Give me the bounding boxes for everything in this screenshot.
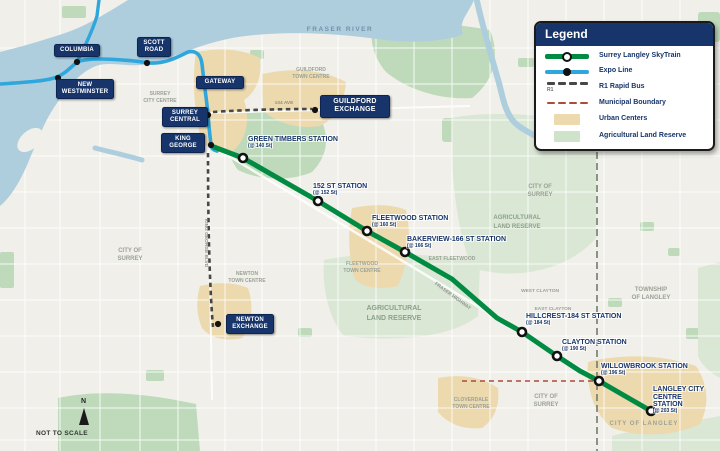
- station-sub: (@ 152 St): [313, 191, 367, 196]
- legend-item-r1: R1 R1 Rapid Bus: [543, 82, 706, 93]
- dot-fleetwood: [363, 227, 371, 235]
- legend-label: R1 Rapid Bus: [599, 83, 645, 92]
- urban-swatch: [543, 114, 591, 125]
- legend-item-urban: Urban Centers: [543, 114, 706, 125]
- north-arrow-icon: [79, 408, 89, 425]
- dot-green-timbers: [239, 154, 247, 162]
- label-guildford-town-centre: GUILDFORD: [296, 67, 326, 73]
- dot-king-george: [208, 142, 214, 148]
- scale-note: NOT TO SCALE: [36, 430, 88, 437]
- station-box-new-westminster: NEW WESTMINSTER: [56, 79, 114, 99]
- label-west-clayton: WEST CLAYTON: [521, 288, 559, 294]
- dot-bakerview: [401, 248, 409, 256]
- dot-columbia: [74, 59, 80, 65]
- label-alr-centre: AGRICULTURAL: [366, 305, 422, 312]
- dot-willowbrook: [595, 377, 603, 385]
- label-city-of-surrey-west: SURREY: [117, 256, 142, 262]
- label-surrey-city-centre: CITY CENTRE: [143, 98, 177, 104]
- skytrain-label-willowbrook: WILLOWBROOK STATION (@ 196 St): [601, 363, 688, 376]
- r1-tag: R1: [547, 87, 553, 93]
- station-sub: (@ 203 St): [653, 409, 711, 414]
- park-patch: [0, 252, 14, 288]
- label-fleetwood-town-centre: TOWN CENTRE: [343, 268, 381, 274]
- label-alr-east: LAND RESERVE: [494, 224, 541, 230]
- station-dot-icon: [563, 68, 571, 76]
- skytrain-label-clayton: CLAYTON STATION (@ 190 St): [562, 339, 627, 352]
- legend-item-skytrain: Surrey Langley SkyTrain: [543, 52, 706, 61]
- label-city-of-surrey-ne: SURREY: [527, 192, 552, 198]
- station-box-surrey-central: SURREY CENTRAL: [162, 107, 208, 127]
- dot-hillcrest: [518, 328, 526, 336]
- skytrain-line-swatch: [543, 52, 591, 61]
- legend-title: Legend: [536, 23, 713, 46]
- legend-label: Agricultural Land Reserve: [599, 132, 689, 141]
- label-fraser-river: FRASER RIVER: [307, 26, 373, 33]
- legend-item-alr: Agricultural Land Reserve: [543, 131, 706, 142]
- label-alr-centre: LAND RESERVE: [367, 315, 422, 322]
- label-newton-town-centre: NEWTON: [236, 271, 259, 277]
- station-name: LANGLEY CITY CENTRE STATION: [653, 386, 704, 408]
- label-city-of-langley: CITY OF LANGLEY: [610, 421, 679, 427]
- station-box-gateway: GATEWAY: [196, 76, 244, 89]
- station-sub: (@ 196 St): [601, 371, 688, 376]
- station-name: HILLCREST-184 ST STATION: [526, 313, 621, 320]
- station-name: GREEN TIMBERS STATION: [248, 136, 338, 143]
- alr-swatch: [543, 131, 591, 142]
- skytrain-label-langley-city-centre: LANGLEY CITY CENTRE STATION (@ 203 St): [653, 386, 711, 414]
- label-fleetwood-town-centre: FLEETWOOD: [346, 261, 378, 267]
- park-patch: [608, 298, 622, 307]
- legend-label: Expo Line: [599, 67, 632, 76]
- station-name: BAKERVIEW-166 ST STATION: [407, 236, 506, 243]
- station-name: WILLOWBROOK STATION: [601, 363, 688, 370]
- label-king-george-blvd: KING GEORGE BLVD: [203, 219, 209, 268]
- station-name: 152 ST STATION: [313, 183, 367, 190]
- station-sub: (@ 184 St): [526, 321, 621, 326]
- legend-item-expo: Expo Line: [543, 67, 706, 76]
- dot-scott-road: [144, 60, 150, 66]
- station-sub: (@ 160 St): [372, 223, 448, 228]
- label-city-of-surrey-ne: CITY OF: [528, 184, 552, 190]
- legend-item-boundary: Municipal Boundary: [543, 99, 706, 108]
- north-label: N: [81, 398, 86, 405]
- legend: Legend Surrey Langley SkyTrain Expo Line…: [534, 21, 715, 151]
- label-township-of-langley: TOWNSHIP: [635, 287, 667, 293]
- label-cloverdale-town-centre: CLOVERDALE: [454, 397, 489, 403]
- r1-dash-swatch: R1: [543, 82, 591, 93]
- station-sub: (@ 140 St): [248, 144, 338, 149]
- dot-newton-exchange: [215, 321, 221, 327]
- skytrain-label-152-st: 152 ST STATION (@ 152 St): [313, 183, 367, 196]
- label-surrey-city-centre: SURREY: [150, 91, 172, 97]
- boundary-dash-swatch: [543, 102, 591, 104]
- station-name: FLEETWOOD STATION: [372, 215, 448, 222]
- station-name: CLAYTON STATION: [562, 339, 627, 346]
- skytrain-label-fleetwood: FLEETWOOD STATION (@ 160 St): [372, 215, 448, 228]
- dashed-boundary-icon: [547, 102, 588, 104]
- station-box-scott-road: SCOTT ROAD: [137, 37, 171, 57]
- label-cloverdale-town-centre: TOWN CENTRE: [452, 404, 490, 410]
- station-box-newton-exchange: NEWTON EXCHANGE: [226, 314, 274, 334]
- skytrain-label-green-timbers: GREEN TIMBERS STATION (@ 140 St): [248, 136, 338, 149]
- label-east-clayton: EAST CLAYTON: [535, 306, 572, 312]
- station-box-guildford-exchange: GUILDFORD EXCHANGE: [320, 95, 390, 118]
- dashed-line-icon: [547, 82, 588, 85]
- park-patch: [62, 6, 86, 18]
- alr-area-icon: [554, 131, 580, 142]
- label-township-of-langley: OF LANGLEY: [632, 295, 671, 301]
- legend-label: Municipal Boundary: [599, 99, 666, 108]
- dot-152-st: [314, 197, 322, 205]
- station-sub: (@ 166 St): [407, 244, 506, 249]
- label-east-fleetwood: EAST FLEETWOOD: [429, 256, 476, 262]
- park-patch: [668, 248, 680, 256]
- label-city-of-surrey-west: CITY OF: [118, 248, 142, 254]
- station-donut-icon: [562, 52, 572, 62]
- dot-guildford-exchange: [312, 107, 318, 113]
- label-city-of-surrey-south: SURREY: [533, 402, 558, 408]
- label-newton-town-centre: TOWN CENTRE: [228, 278, 266, 284]
- urban-area-icon: [554, 114, 580, 125]
- skytrain-label-hillcrest: HILLCREST-184 ST STATION (@ 184 St): [526, 313, 621, 326]
- station-sub: (@ 190 St): [562, 347, 627, 352]
- station-box-columbia: COLUMBIA: [54, 44, 100, 57]
- expo-line-swatch: [543, 67, 591, 76]
- legend-rows: Surrey Langley SkyTrain Expo Line R1 R1 …: [536, 46, 713, 149]
- label-city-of-surrey-south: CITY OF: [534, 394, 558, 400]
- transit-map: FRASER RIVER SURREY CITY CENTRE GUILDFOR…: [0, 0, 720, 451]
- skytrain-label-bakerview: BAKERVIEW-166 ST STATION (@ 166 St): [407, 236, 506, 249]
- legend-label: Urban Centers: [599, 115, 647, 124]
- alr-se-edge: [698, 262, 720, 378]
- label-104-ave: 104 AVE: [275, 100, 294, 106]
- legend-label: Surrey Langley SkyTrain: [599, 52, 681, 61]
- station-box-king-george: KING GEORGE: [161, 133, 205, 153]
- label-guildford-town-centre: TOWN CENTRE: [292, 74, 330, 80]
- dot-clayton: [553, 352, 561, 360]
- label-alr-east: AGRICULTURAL: [493, 215, 541, 221]
- park-patch: [518, 58, 534, 67]
